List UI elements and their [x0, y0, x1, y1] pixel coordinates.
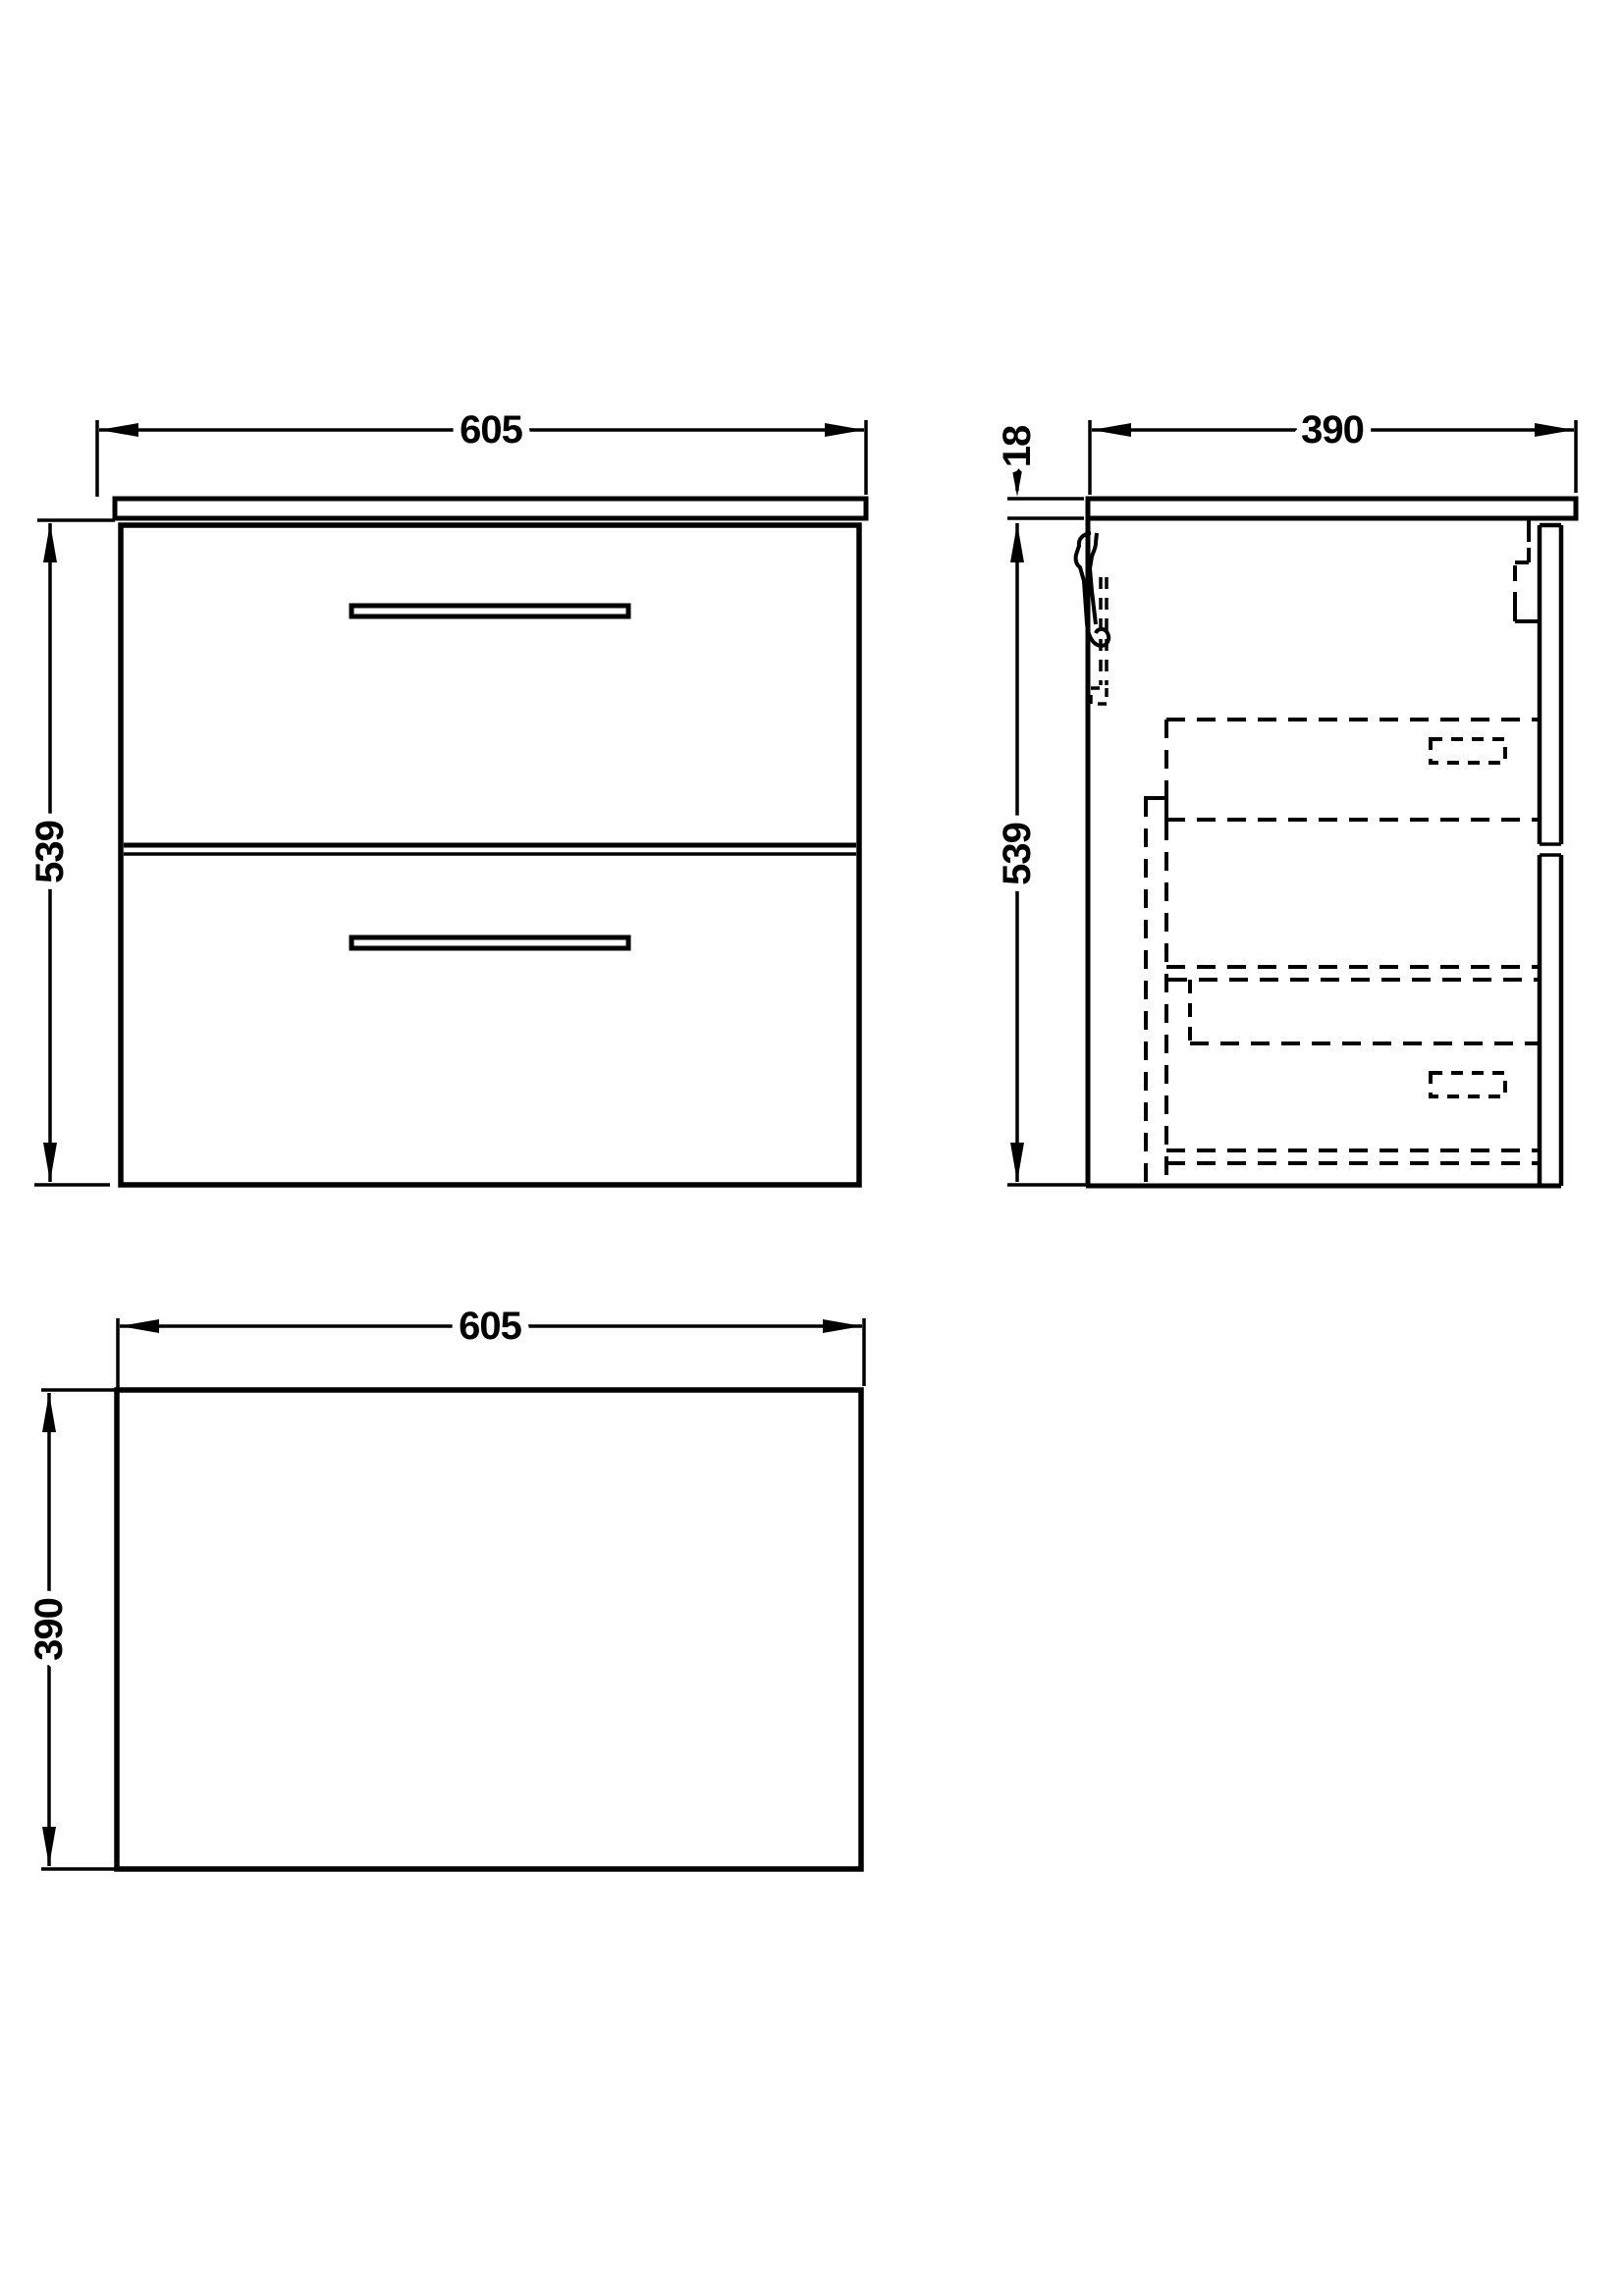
technical-drawing-page: 605 539 [0, 0, 1623, 2296]
plan-width-dimension: 605 [118, 1305, 864, 1388]
front-worktop [115, 499, 866, 518]
side-height-dimension-label: 539 [996, 823, 1039, 885]
side-height-dimension: 539 [996, 523, 1086, 1185]
front-height-dimension-label: 539 [28, 821, 72, 883]
front-drawer2-handle [352, 937, 628, 948]
wall-bracket [1076, 533, 1109, 646]
side-drawer2-handle-hidden [1431, 1073, 1505, 1096]
side-front-panel [1540, 525, 1561, 1186]
plan-depth-dimension: 390 [27, 1390, 115, 1869]
side-worktop-thickness-dimension: 18 [996, 425, 1084, 518]
side-drawer1-hidden-box [1166, 720, 1540, 820]
side-worktop-thickness-label: 18 [996, 425, 1039, 467]
side-back-hidden-lines [1146, 798, 1166, 1184]
front-drawer1-handle [352, 606, 628, 616]
plan-outline [117, 1390, 861, 1869]
front-view: 605 539 [28, 408, 866, 1185]
side-drawer1-handle-hidden [1431, 739, 1505, 763]
side-view: 390 18 539 [996, 408, 1576, 1186]
side-front-notch [1515, 520, 1540, 621]
side-drawer2-hidden-box [1166, 967, 1540, 1163]
side-worktop [1088, 499, 1576, 518]
front-width-dimension: 605 [97, 408, 866, 497]
plan-width-dimension-label: 605 [459, 1305, 521, 1348]
front-height-dimension: 539 [28, 520, 115, 1185]
vanity-dimension-drawing: 605 539 [0, 0, 1623, 2296]
front-width-dimension-label: 605 [460, 408, 522, 452]
plan-depth-dimension-label: 390 [27, 1598, 71, 1661]
side-depth-dimension-label: 390 [1301, 408, 1364, 452]
plan-view: 605 390 [27, 1305, 864, 1869]
side-depth-dimension: 390 [1090, 408, 1576, 495]
